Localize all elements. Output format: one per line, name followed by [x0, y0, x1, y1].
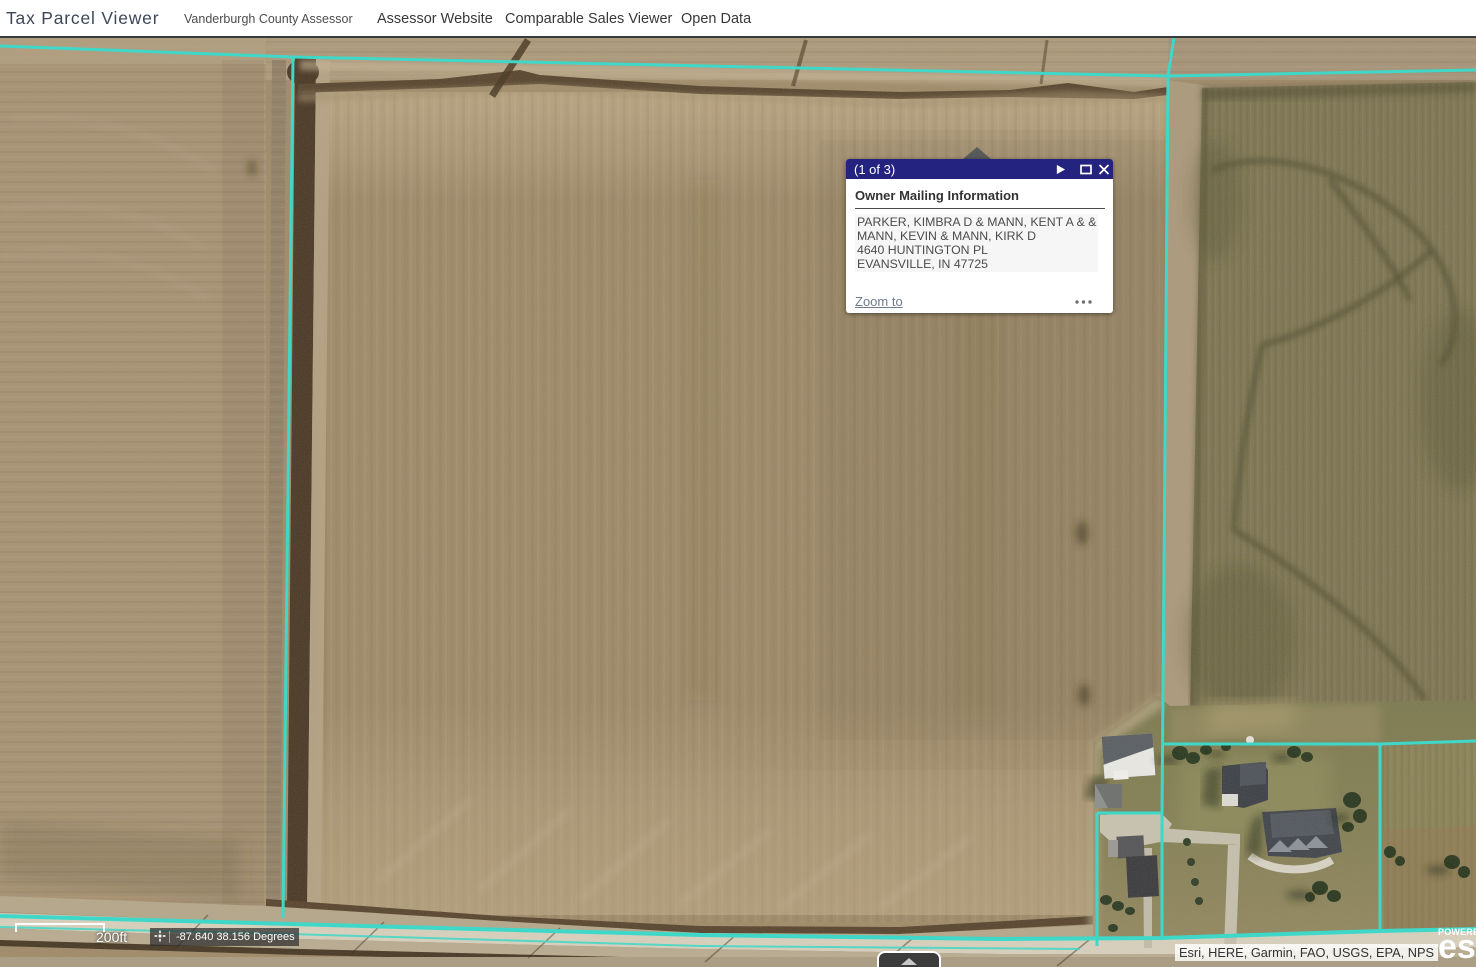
- svg-text:200ft: 200ft: [96, 929, 127, 945]
